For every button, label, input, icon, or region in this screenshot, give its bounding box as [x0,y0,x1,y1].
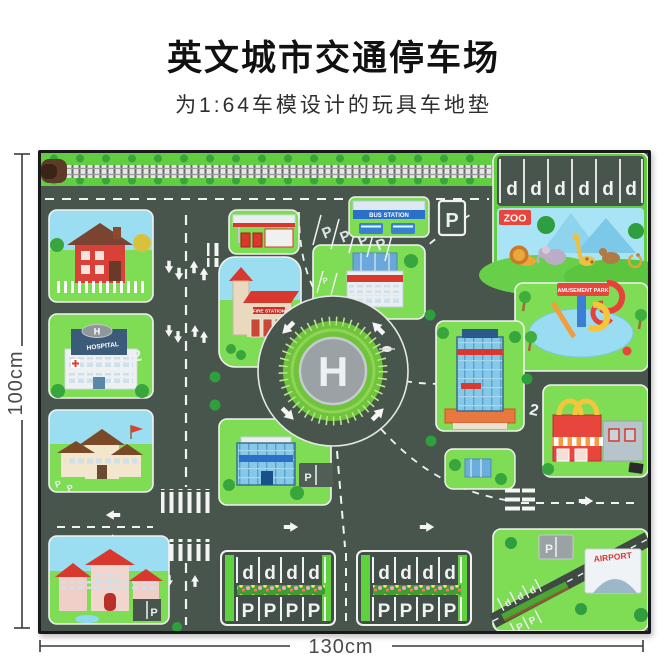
stall-letter: d [400,563,412,584]
tree [290,486,304,500]
amusement-park-block: AMUSEMENT PARK [515,283,648,371]
stall-letter: d [530,179,542,200]
stall-letter: P [286,601,299,622]
stall-letter: d [506,179,518,200]
hospital-roof-h-label: H [94,327,101,337]
crosswalk [505,487,535,513]
zoo-sign-label: ZOO [504,213,527,225]
stall-letter: P [422,601,435,622]
tree [133,234,151,252]
fuel-pump [241,233,250,247]
stall-letter: d [554,179,566,200]
skyscraper [457,337,503,411]
tree [542,463,554,475]
school-block: P [49,536,169,624]
amusement-park-sign-label: AMUSEMENT PARK [557,288,608,294]
tree [537,216,555,234]
slide-tower [577,293,586,327]
roundabout: H [258,296,408,446]
parking-sign-label: P [445,210,458,232]
fire-tower [233,281,249,335]
airport-block: d d d P P P AIRPORT [493,529,648,631]
tree [628,223,644,239]
gas-station [229,210,299,254]
airport-building: AIRPORT [585,549,641,593]
width-dimension: 130cm [38,633,645,663]
railway-strip [41,153,498,186]
house-block [49,210,153,302]
stall-letter: P [378,601,391,622]
small-building [465,459,491,477]
stall-letter: d [625,179,637,200]
parking-mark: P [150,607,157,619]
page-title: 英文城市交通停车场 [0,30,667,81]
railroad-track [43,165,496,178]
tree [135,384,149,398]
mat-illustration: H HOSPITAL 2 [41,153,648,631]
bus-station-sign: BUS STATION [369,213,409,219]
stall-letter: d [308,563,320,584]
restaurant-block [542,385,648,477]
tree [449,459,461,471]
height-label: 100cm [8,350,27,415]
stall-letter: d [602,179,614,200]
stall-letter: d [378,563,390,584]
helipad-h-label: H [318,348,348,395]
bus [359,223,383,234]
skyscraper-block [436,321,524,431]
tree [505,537,517,549]
stall-letter: P [242,601,255,622]
bus [391,223,415,234]
zoo-block: d d d d d d [479,153,648,295]
stall-letter: P [400,601,413,622]
parking-sign: P [439,201,465,235]
stall-letter: d [444,563,456,584]
crosswalk [161,489,211,513]
stall-letter: d [264,563,276,584]
flower-strip [373,585,461,595]
parking-mark: P [545,542,553,556]
parking-lot: d d d d P P P P [357,551,471,625]
stall-letter: P [308,601,321,622]
parking-mark: P [304,472,311,484]
height-dimension: 100cm [8,150,36,632]
tree [575,603,587,615]
pool [75,615,99,623]
stall-letter: d [242,563,254,584]
crosswalk [207,243,223,267]
product-image: 英文城市交通停车场 为1:64车模设计的玩具车地垫 100cm 130cm [0,0,667,665]
umbrella [623,347,632,356]
mansion-block: P P [49,410,153,494]
tree [495,473,507,485]
small-green-pad [445,449,515,489]
fire-station-sign: FIRE STATION [253,309,286,315]
stall-letter: d [578,179,590,200]
fence [53,281,145,293]
gas-kiosk [265,229,293,247]
tree [634,608,648,622]
tree [437,327,449,339]
tree [223,479,235,491]
stall-letter: d [422,563,434,584]
tree [404,254,418,268]
bus-station: BUS STATION [349,197,429,237]
awning [551,437,603,446]
parking-lot: d d d d P P P P [221,551,335,625]
tree [51,384,65,398]
zoo-parking-row [497,156,644,206]
menu-board [628,462,643,474]
page-subtitle: 为1:64车模设计的玩具车地垫 [0,89,667,119]
tree [50,238,64,252]
stall-letter: d [286,563,298,584]
fuel-pump [253,233,262,247]
play-mat: H HOSPITAL 2 [38,150,651,634]
stall-letter: P [264,601,277,622]
width-label: 130cm [308,636,373,658]
stall-letter: P [444,601,457,622]
tree [509,331,521,343]
flower-strip [237,585,325,595]
